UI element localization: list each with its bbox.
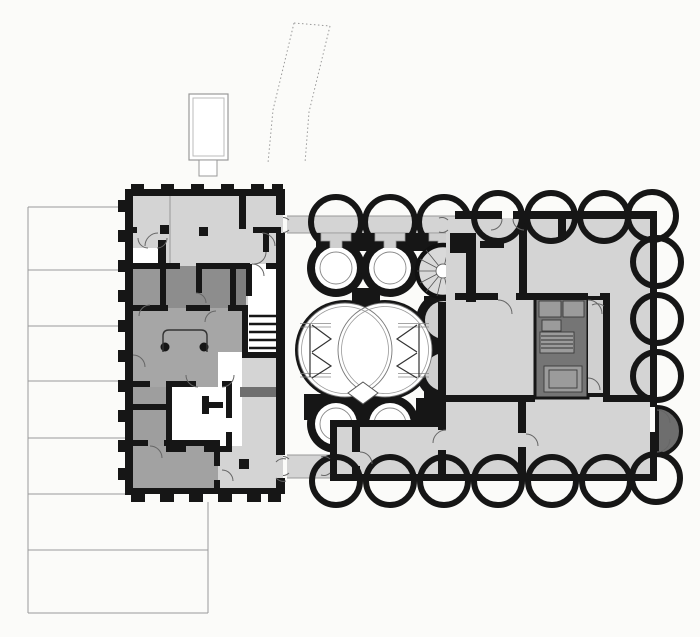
anteroom (132, 248, 158, 264)
left-building (118, 184, 286, 502)
floor-plan-canvas (0, 0, 700, 637)
dashed-entrance-wall (131, 494, 281, 502)
skylight-structure (189, 94, 228, 176)
rooms-sw (131, 387, 166, 446)
east-niche-dark (657, 407, 681, 455)
south-band (131, 446, 218, 494)
dotted-footpath (268, 23, 330, 163)
core-stair (540, 332, 574, 353)
column (161, 343, 170, 352)
floor-plan-svg (0, 0, 700, 637)
dark-bar (240, 387, 279, 397)
